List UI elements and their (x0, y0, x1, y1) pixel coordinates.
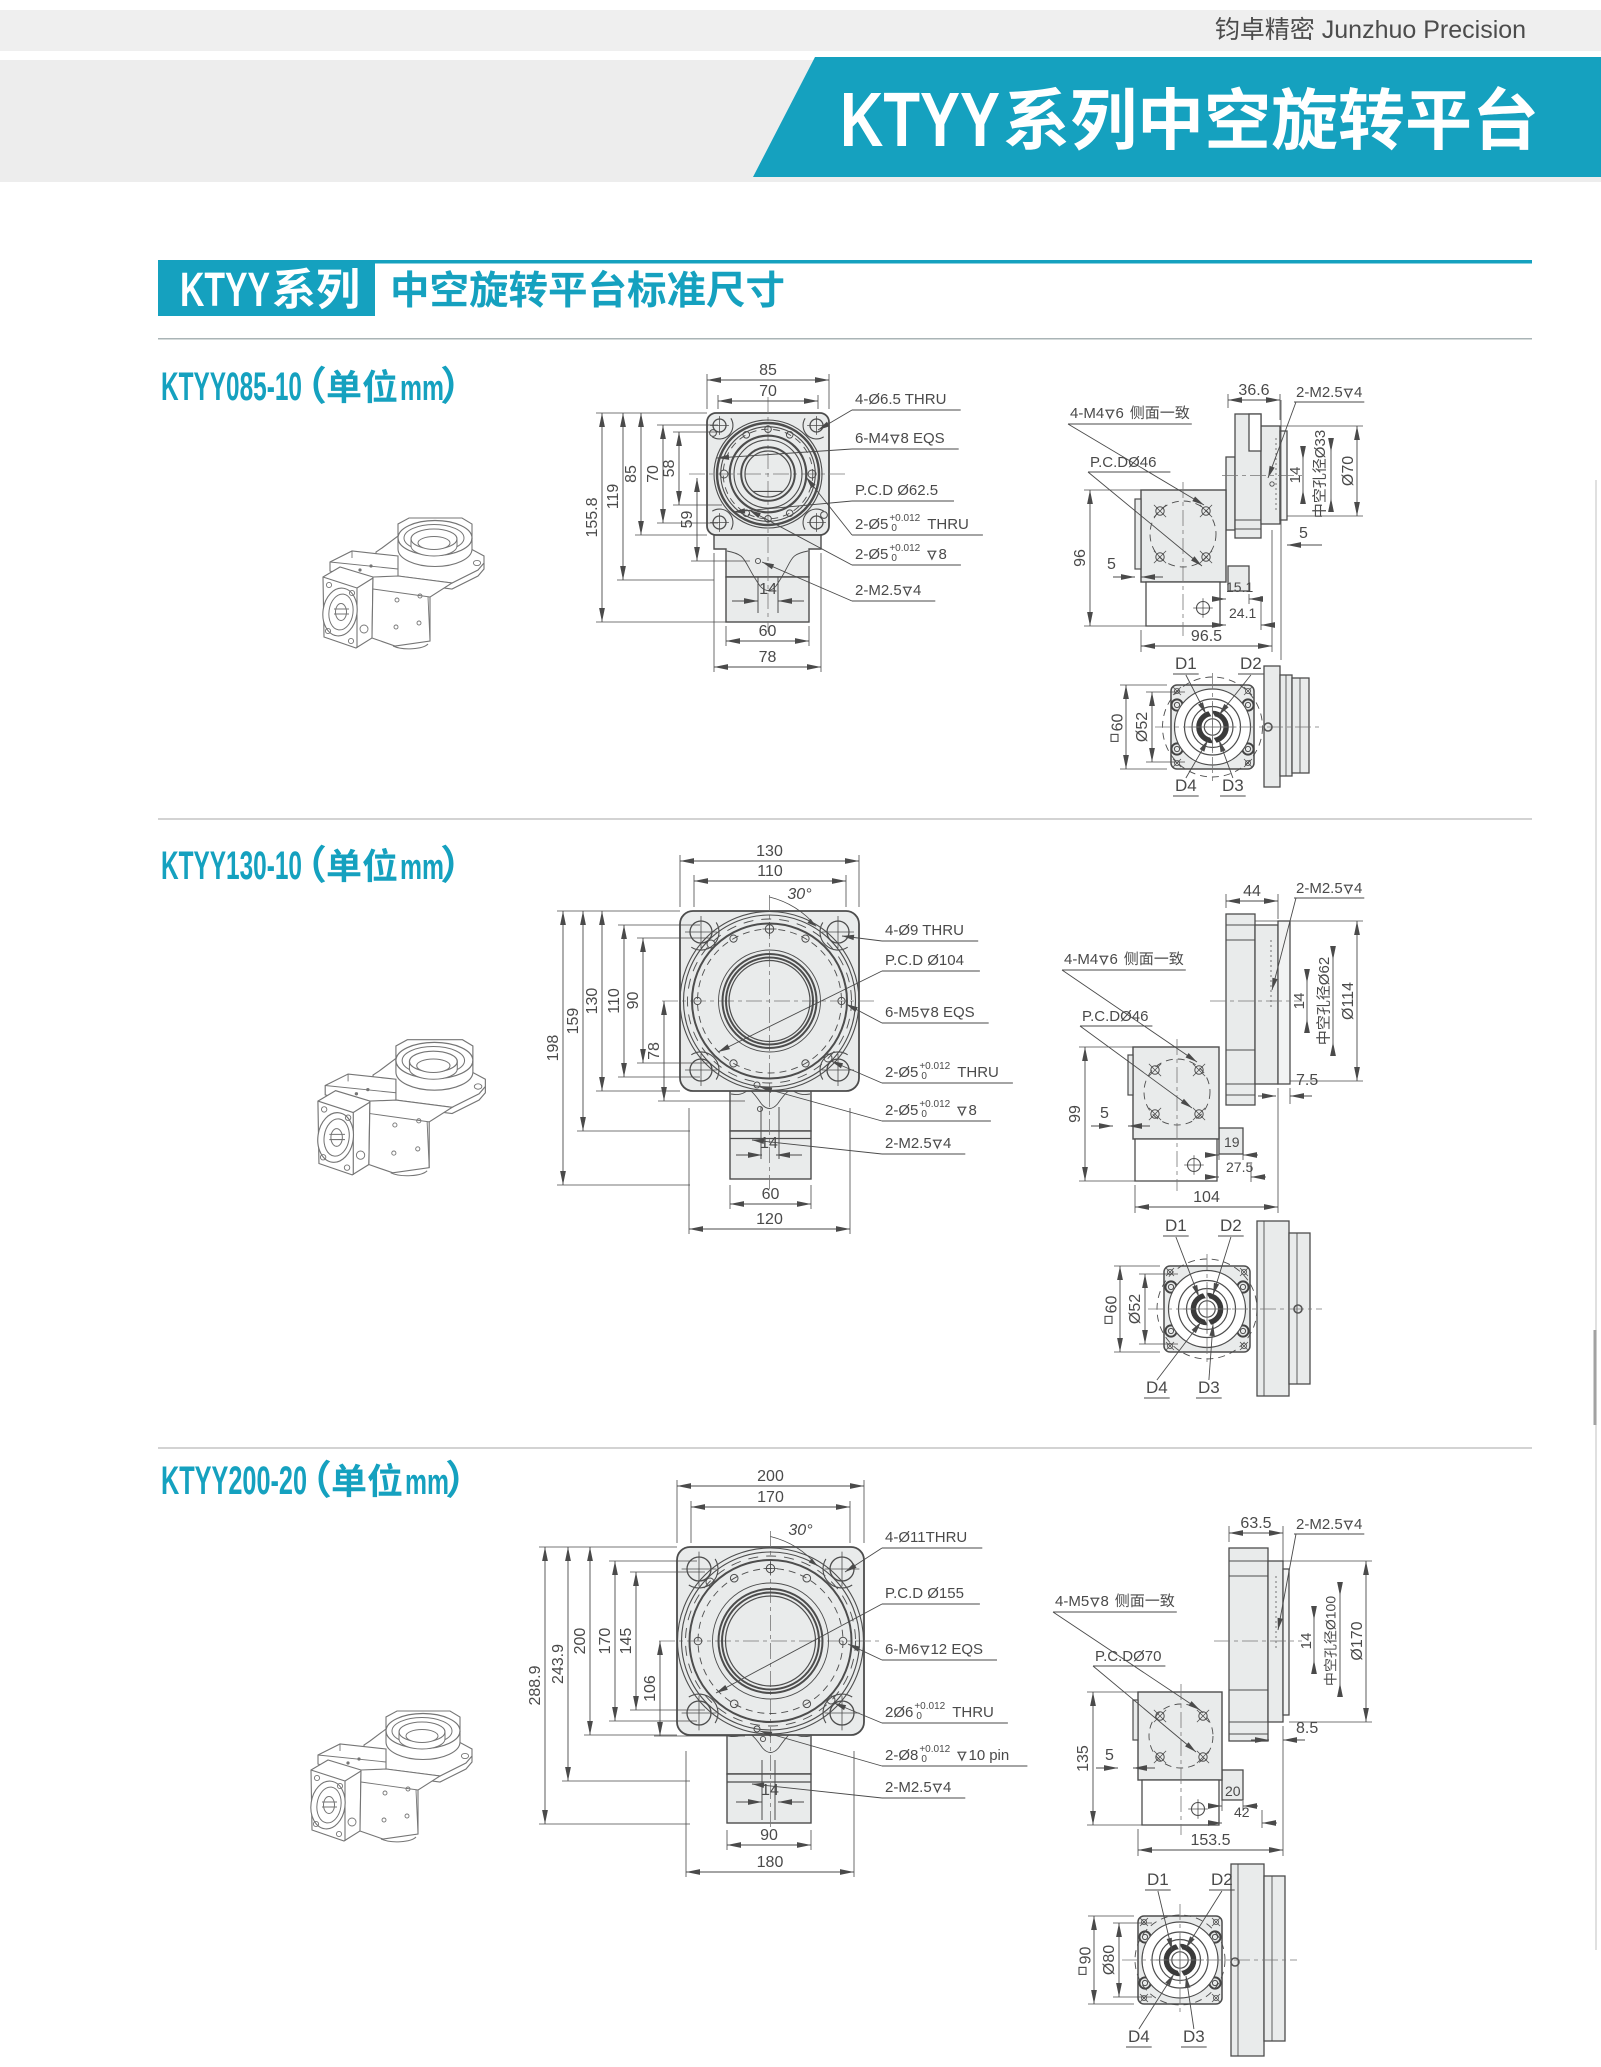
svg-text:D2: D2 (1220, 1216, 1242, 1235)
svg-text:10: 10 (969, 1747, 986, 1764)
svg-text:D4: D4 (1146, 1378, 1168, 1397)
svg-text:4-Ø11THRU: 4-Ø11THRU (885, 1529, 967, 1546)
svg-text:2-Ø5: 2-Ø5 (855, 546, 888, 563)
svg-text:Ø33: Ø33 (1312, 430, 1329, 458)
svg-text:0: 0 (921, 1071, 927, 1082)
svg-text:KTYY: KTYY (840, 77, 1000, 163)
svg-text:96.5: 96.5 (1191, 628, 1222, 645)
svg-text:4-M5: 4-M5 (1055, 1593, 1089, 1610)
svg-text:D4: D4 (1128, 2027, 1150, 2046)
svg-text:85: 85 (623, 465, 640, 483)
svg-text:4: 4 (913, 582, 921, 599)
svg-text:P.C.D Ø62.5: P.C.D Ø62.5 (855, 482, 938, 499)
svg-text:6: 6 (1109, 951, 1117, 968)
svg-text:5: 5 (1105, 1747, 1114, 1764)
svg-text:Ø70: Ø70 (1340, 456, 1357, 486)
svg-text:60: 60 (1104, 1296, 1121, 1314)
svg-text:5: 5 (1107, 556, 1116, 573)
svg-text:Ø80: Ø80 (1101, 1945, 1118, 1975)
svg-text:14: 14 (759, 581, 777, 598)
svg-text:8 EQS: 8 EQS (900, 430, 944, 447)
svg-text:4-M4: 4-M4 (1064, 951, 1098, 968)
svg-text:2Ø6: 2Ø6 (885, 1704, 913, 1721)
svg-text:mm: mm (405, 1461, 449, 1502)
svg-text:4: 4 (1354, 1516, 1362, 1533)
svg-text:0: 0 (891, 553, 897, 564)
svg-text:8: 8 (939, 546, 947, 563)
svg-text:THRU: THRU (952, 1704, 994, 1721)
svg-text:5: 5 (1100, 1105, 1109, 1122)
svg-text:110: 110 (606, 988, 623, 1014)
svg-text:Junzhuo Precision: Junzhuo Precision (1322, 16, 1526, 44)
svg-text:36.6: 36.6 (1238, 382, 1269, 399)
svg-text:4-M4: 4-M4 (1070, 405, 1104, 422)
svg-text:2-Ø5: 2-Ø5 (885, 1102, 918, 1119)
svg-text:200: 200 (757, 1468, 784, 1485)
svg-text:85: 85 (759, 362, 777, 379)
svg-text:2-M2.5: 2-M2.5 (885, 1135, 932, 1152)
svg-text:P.C.DØ46: P.C.DØ46 (1082, 1008, 1148, 1025)
svg-text:THRU: THRU (957, 1064, 999, 1081)
svg-text:0: 0 (921, 1109, 927, 1120)
svg-text:145: 145 (618, 1628, 635, 1655)
svg-text:D3: D3 (1222, 776, 1244, 795)
svg-text:99: 99 (1067, 1105, 1084, 1123)
svg-text:288.9: 288.9 (527, 1665, 544, 1705)
svg-text:Ø114: Ø114 (1340, 982, 1357, 1020)
svg-text:96: 96 (1072, 549, 1089, 567)
svg-text:8 EQS: 8 EQS (930, 1004, 974, 1021)
svg-text:60: 60 (1110, 714, 1127, 732)
svg-text:135: 135 (1075, 1745, 1092, 1772)
svg-text:170: 170 (597, 1628, 614, 1655)
svg-text:155.8: 155.8 (584, 497, 601, 537)
svg-text:4-Ø6.5 THRU: 4-Ø6.5 THRU (855, 391, 946, 408)
svg-text:104: 104 (1193, 1189, 1220, 1206)
svg-text:159: 159 (565, 1008, 582, 1035)
svg-text:D2: D2 (1211, 1870, 1233, 1889)
svg-text:pin: pin (989, 1747, 1009, 1764)
svg-text:2-Ø5: 2-Ø5 (885, 1064, 918, 1081)
svg-text:120: 120 (756, 1211, 783, 1228)
svg-text:D3: D3 (1183, 2027, 1205, 2046)
svg-text:Ø62: Ø62 (1316, 957, 1333, 985)
svg-text:D3: D3 (1198, 1378, 1220, 1397)
svg-text:0: 0 (916, 1711, 922, 1722)
svg-text:0: 0 (891, 523, 897, 534)
svg-text:24.1: 24.1 (1229, 605, 1256, 621)
svg-text:19: 19 (1224, 1134, 1240, 1150)
svg-text:60: 60 (759, 623, 777, 640)
svg-text:70: 70 (645, 465, 662, 483)
svg-text:170: 170 (757, 1489, 784, 1506)
svg-text:Ø52: Ø52 (1127, 1294, 1144, 1324)
svg-text:D4: D4 (1175, 776, 1197, 795)
svg-text:D1: D1 (1175, 654, 1197, 673)
svg-text:P.C.DØ70: P.C.DØ70 (1095, 1648, 1161, 1665)
svg-text:P.C.D Ø104: P.C.D Ø104 (885, 952, 964, 969)
svg-text:4-Ø9 THRU: 4-Ø9 THRU (885, 922, 964, 939)
svg-text:44: 44 (1243, 883, 1261, 900)
svg-text:119: 119 (605, 484, 622, 510)
svg-text:8: 8 (1100, 1593, 1108, 1610)
svg-text:6-M5: 6-M5 (885, 1004, 919, 1021)
svg-text:5: 5 (1299, 525, 1308, 542)
svg-text:KTYY130-10: KTYY130-10 (161, 844, 302, 888)
svg-text:12 EQS: 12 EQS (930, 1641, 983, 1658)
svg-text:200: 200 (572, 1628, 589, 1655)
svg-text:KTYY: KTYY (180, 264, 270, 317)
svg-text:D1: D1 (1165, 1216, 1187, 1235)
svg-text:2-M2.5: 2-M2.5 (885, 1779, 932, 1796)
svg-text:P.C.D Ø155: P.C.D Ø155 (885, 1585, 964, 1602)
svg-text:106: 106 (642, 1675, 659, 1702)
svg-text:D1: D1 (1147, 1870, 1169, 1889)
svg-text:30°: 30° (788, 1522, 813, 1539)
svg-text:90: 90 (1078, 1947, 1095, 1965)
svg-text:63.5: 63.5 (1240, 1515, 1271, 1532)
svg-text:0: 0 (921, 1754, 927, 1765)
svg-text:THRU: THRU (927, 516, 969, 533)
svg-text:78: 78 (759, 649, 777, 666)
svg-text:14: 14 (1287, 467, 1304, 484)
svg-text:mm: mm (400, 367, 444, 408)
svg-text:130: 130 (756, 843, 783, 860)
svg-text:60: 60 (762, 1186, 780, 1203)
svg-text:90: 90 (625, 992, 642, 1010)
svg-text:4: 4 (943, 1135, 951, 1152)
svg-text:2-M2.5: 2-M2.5 (1296, 1516, 1343, 1533)
svg-text:30°: 30° (787, 886, 812, 903)
svg-text:P.C.DØ46: P.C.DØ46 (1090, 454, 1156, 471)
svg-text:2-Ø5: 2-Ø5 (855, 516, 888, 533)
svg-text:243.9: 243.9 (550, 1644, 567, 1684)
svg-text:42: 42 (1234, 1804, 1250, 1820)
svg-text:8.5: 8.5 (1296, 1720, 1318, 1737)
svg-text:Ø100: Ø100 (1322, 1596, 1338, 1630)
svg-text:Ø170: Ø170 (1349, 1621, 1366, 1660)
svg-text:2-M2.5: 2-M2.5 (1296, 384, 1343, 401)
svg-text:4: 4 (1354, 384, 1362, 401)
svg-text:198: 198 (545, 1035, 562, 1062)
svg-text:2-Ø8: 2-Ø8 (885, 1747, 918, 1764)
svg-text:6-M4: 6-M4 (855, 430, 889, 447)
svg-text:180: 180 (757, 1854, 784, 1871)
svg-text:mm: mm (400, 846, 444, 887)
svg-text:KTYY200-20: KTYY200-20 (161, 1459, 307, 1503)
svg-text:15.1: 15.1 (1226, 579, 1253, 595)
svg-text:14: 14 (1298, 1633, 1315, 1650)
svg-text:4: 4 (943, 1779, 951, 1796)
svg-text:Ø52: Ø52 (1134, 712, 1151, 742)
svg-text:59: 59 (679, 511, 696, 529)
svg-text:6-M6: 6-M6 (885, 1641, 919, 1658)
svg-text:70: 70 (759, 383, 777, 400)
svg-text:2-M2.5: 2-M2.5 (1296, 880, 1343, 897)
svg-text:27.5: 27.5 (1226, 1159, 1253, 1175)
svg-text:2-M2.5: 2-M2.5 (855, 582, 902, 599)
svg-text:6: 6 (1115, 405, 1123, 422)
svg-text:14: 14 (1291, 993, 1308, 1010)
svg-text:7.5: 7.5 (1296, 1072, 1318, 1089)
svg-text:D2: D2 (1240, 654, 1262, 673)
svg-text:78: 78 (646, 1042, 663, 1060)
svg-text:58: 58 (661, 460, 678, 478)
svg-text:20: 20 (1225, 1783, 1241, 1799)
svg-text:110: 110 (757, 863, 783, 880)
svg-text:90: 90 (760, 1827, 778, 1844)
svg-text:8: 8 (969, 1102, 977, 1119)
svg-text:153.5: 153.5 (1190, 1832, 1230, 1849)
svg-text:4: 4 (1354, 880, 1362, 897)
svg-text:KTYY085-10: KTYY085-10 (161, 365, 302, 409)
svg-text:130: 130 (584, 988, 601, 1015)
